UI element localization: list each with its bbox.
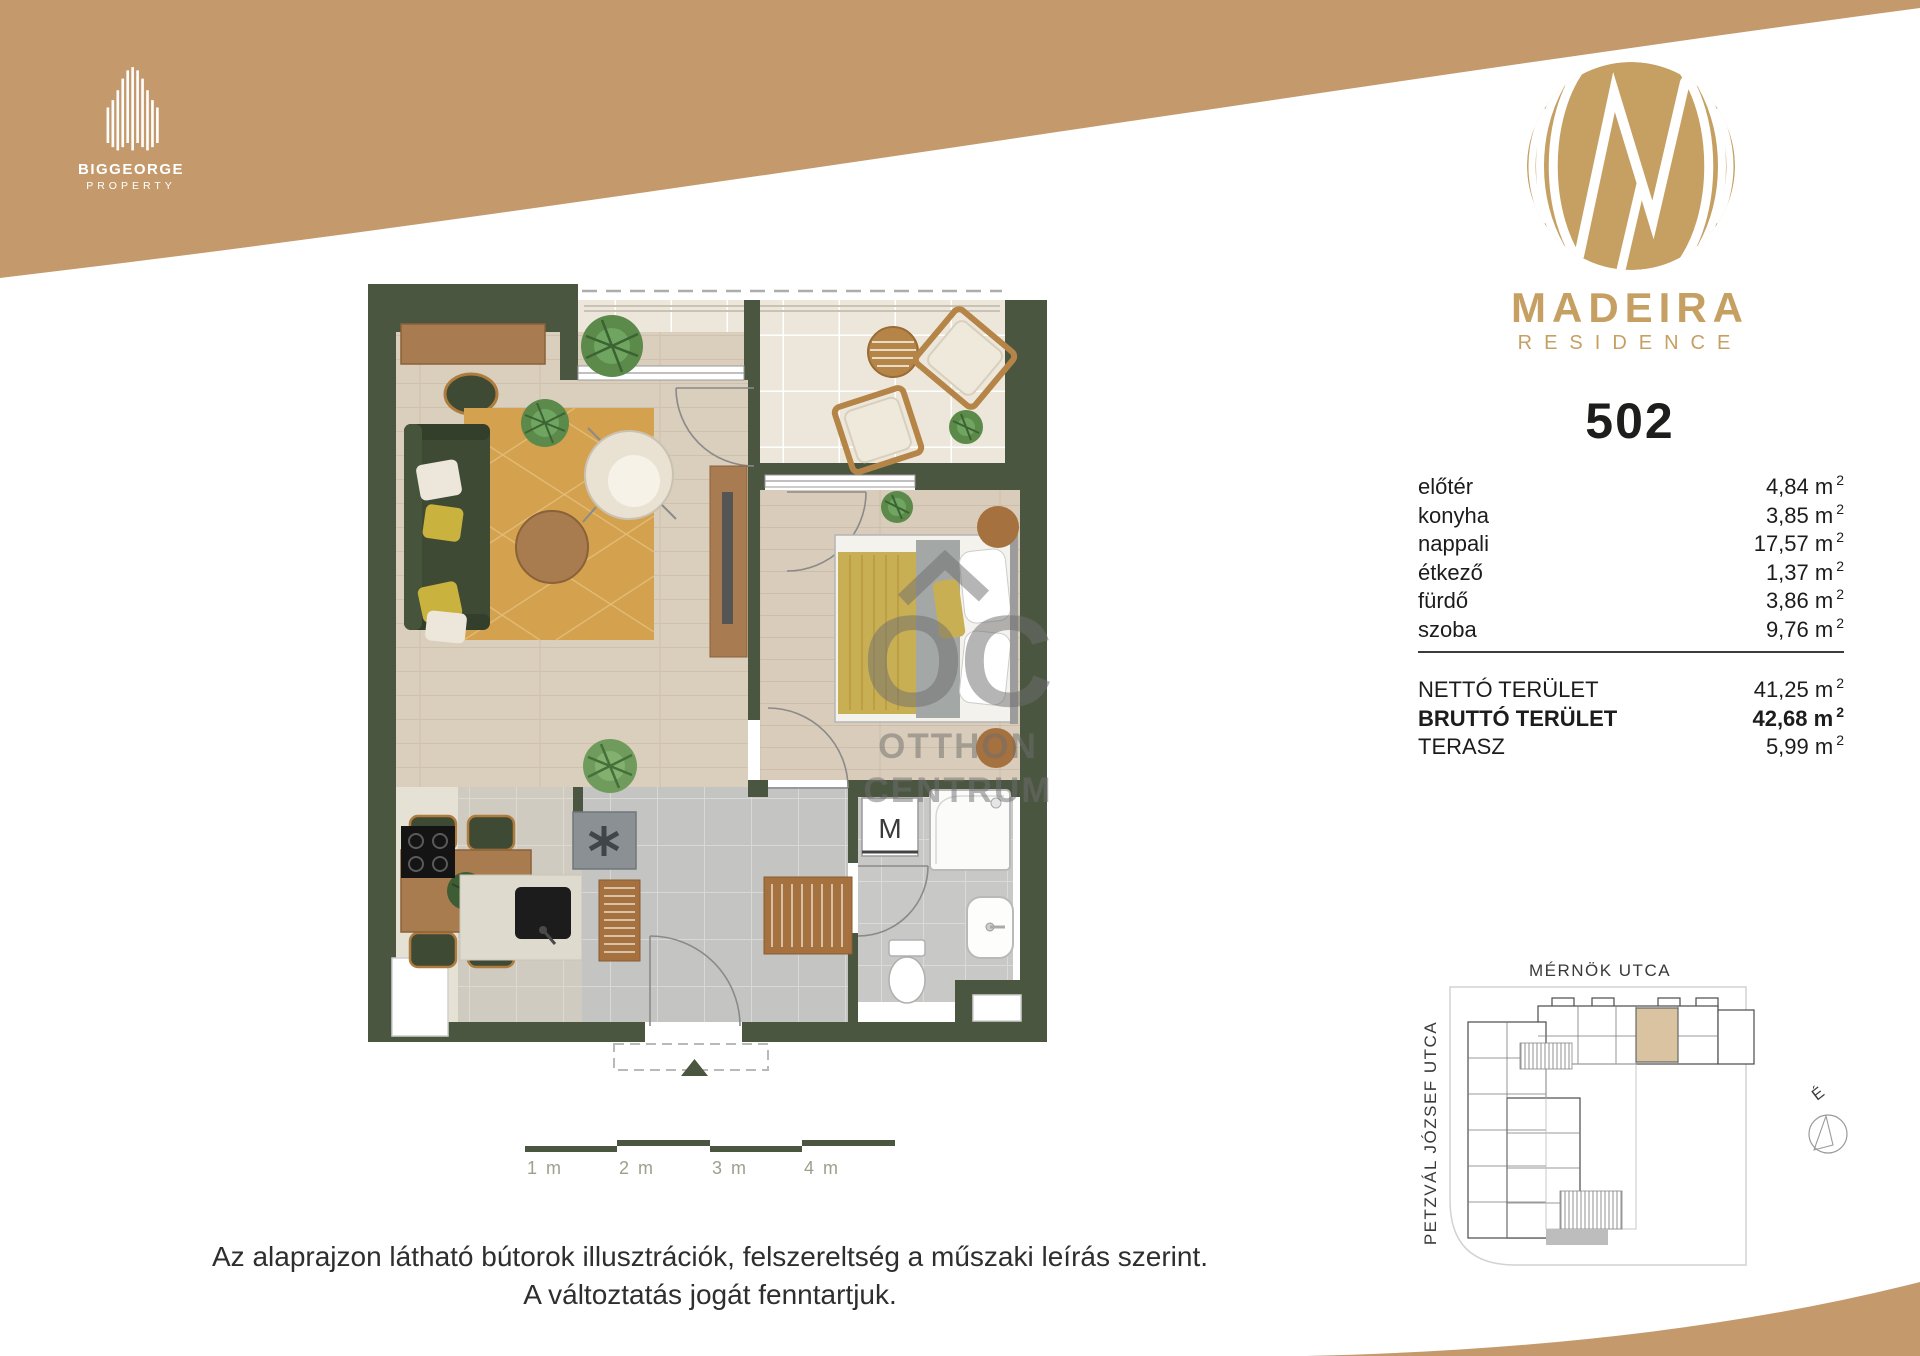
area-row-label: előtér: [1418, 474, 1473, 500]
area-row-label: BRUTTÓ TERÜLET: [1418, 706, 1617, 732]
watermark-line1: OTTHON: [878, 727, 1038, 766]
superscript: 2: [1836, 529, 1844, 545]
area-row-value: 17,57 m2: [1754, 531, 1844, 557]
area-row-label: konyha: [1418, 503, 1489, 529]
bathroom-sink: [967, 897, 1013, 958]
madeira-name: MADEIRA: [1410, 284, 1850, 332]
superscript: 2: [1836, 586, 1844, 602]
area-row-label: NETTÓ TERÜLET: [1418, 677, 1599, 703]
area-row: BRUTTÓ TERÜLET42,68 m2: [1418, 706, 1844, 735]
kitchen-sink: [515, 887, 571, 944]
superscript: 2: [1836, 704, 1844, 720]
area-row: szoba9,76 m2: [1418, 617, 1844, 646]
room-list: előtér4,84 m2konyha3,85 m2nappali17,57 m…: [1418, 474, 1844, 646]
bottom-gold-swoosh: [1306, 1282, 1920, 1356]
terrace-table: [868, 327, 918, 377]
area-row: étkező1,37 m2: [1418, 560, 1844, 589]
toilet: [889, 940, 925, 1003]
area-row-label: TERASZ: [1418, 734, 1505, 760]
superscript: 2: [1836, 472, 1844, 488]
round-rug: [977, 506, 1019, 548]
superscript: 2: [1836, 615, 1844, 631]
madeira-logo-icon: [1521, 56, 1741, 276]
scale-label-1m: 1 m: [527, 1158, 563, 1178]
biggeorge-subtitle: PROPERTY: [46, 180, 216, 192]
highlighted-unit: [1636, 1008, 1678, 1062]
area-row-value: 3,85 m2: [1766, 503, 1844, 529]
madeira-subtitle: RESIDENCE: [1410, 332, 1850, 355]
superscript: 2: [1836, 501, 1844, 517]
superscript: 2: [1836, 675, 1844, 691]
stairs-hatch: [1560, 1191, 1622, 1229]
cooktop: [401, 826, 455, 878]
terrace-slab: [1546, 1229, 1608, 1245]
totals-list: NETTÓ TERÜLET41,25 m2BRUTTÓ TERÜLET42,68…: [1418, 677, 1844, 763]
washer-label: M: [878, 813, 901, 844]
area-row-value: 3,86 m2: [1766, 588, 1844, 614]
stairs-hatch: [1520, 1043, 1572, 1069]
superscript: 2: [1836, 558, 1844, 574]
area-row: NETTÓ TERÜLET41,25 m2: [1418, 677, 1844, 706]
street-label-left: PETZVÁL JÓZSEF UTCA: [1421, 1021, 1440, 1245]
site-plan: MÉRNÖK UTCA PETZVÁL JÓZSEF UTCA É: [1420, 948, 1860, 1278]
area-row-value: 4,84 m2: [1766, 474, 1844, 500]
area-row: konyha3,85 m2: [1418, 503, 1844, 532]
disclaimer-line1: Az alaprajzon látható bútorok illusztrác…: [160, 1238, 1260, 1276]
scale-label-2m: 2 m: [619, 1158, 655, 1178]
disclaimer-line2: A változtatás jogát fenntartjuk.: [160, 1276, 1260, 1314]
wooden-mat: [599, 880, 640, 961]
north-label: É: [1808, 1083, 1828, 1105]
area-row-value: 42,68 m2: [1752, 706, 1844, 732]
area-row-value: 41,25 m2: [1754, 677, 1844, 703]
biggeorge-logo-icon: [98, 60, 164, 160]
street-label-top: MÉRNÖK UTCA: [1529, 961, 1671, 980]
coffee-table: [516, 511, 588, 583]
area-row-value: 9,76 m2: [1766, 617, 1844, 643]
unit-number: 502: [1410, 392, 1850, 450]
watermark-mark: OC: [863, 588, 1051, 734]
floorplan: M OC OTTHON CENTRUM 1 m 2 m 3 m: [360, 280, 1060, 1180]
scale-label-4m: 4 m: [804, 1158, 840, 1178]
watermark-line2: CENTRUM: [864, 771, 1053, 810]
area-divider: [1418, 651, 1844, 653]
area-row-label: étkező: [1418, 560, 1483, 586]
biggeorge-name: BIGGEORGE: [46, 161, 216, 178]
scale-bar: [525, 1140, 895, 1152]
dishwasher: [573, 812, 636, 869]
area-row-value: 5,99 m2: [1766, 734, 1844, 760]
area-row-label: nappali: [1418, 531, 1489, 557]
scale-labels: 1 m 2 m 3 m 4 m: [527, 1158, 840, 1178]
area-row: TERASZ5,99 m2: [1418, 734, 1844, 763]
north-triangle: [681, 1059, 708, 1076]
sideboard: [401, 324, 545, 364]
wooden-mat: [764, 877, 852, 954]
watermark: OC OTTHON CENTRUM: [863, 560, 1053, 810]
superscript: 2: [1836, 732, 1844, 748]
area-row-label: fürdő: [1418, 588, 1468, 614]
disclaimer: Az alaprajzon látható bútorok illusztrác…: [160, 1238, 1260, 1314]
scale-label-3m: 3 m: [712, 1158, 748, 1178]
area-row: előtér4,84 m2: [1418, 474, 1844, 503]
area-row: nappali17,57 m2: [1418, 531, 1844, 560]
tv: [722, 492, 733, 624]
area-row: fürdő3,86 m2: [1418, 588, 1844, 617]
compass: É: [1808, 1083, 1847, 1153]
area-row-label: szoba: [1418, 617, 1477, 643]
sofa: [404, 424, 490, 644]
area-row-value: 1,37 m2: [1766, 560, 1844, 586]
